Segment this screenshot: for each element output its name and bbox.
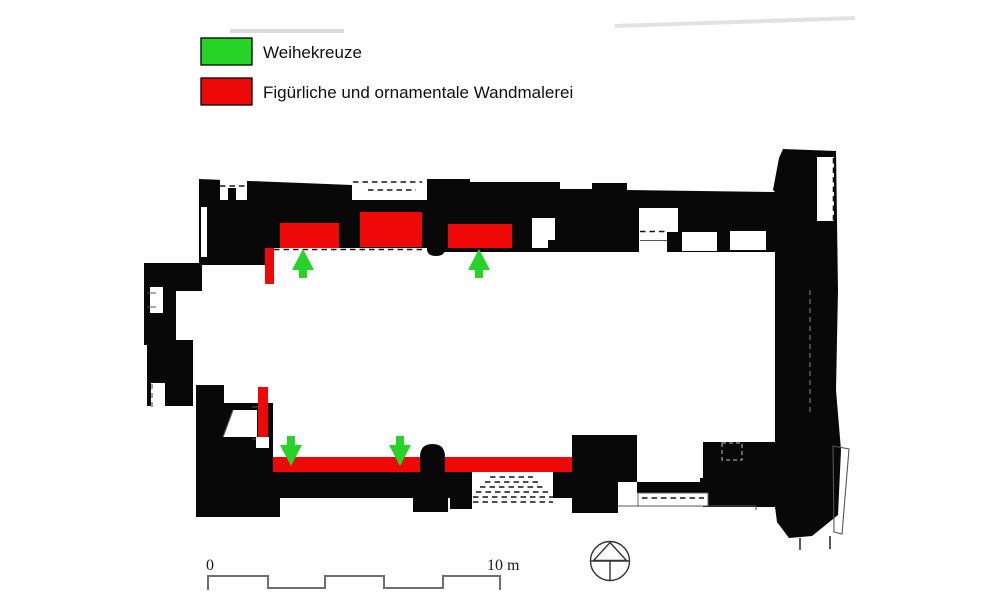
- south-arch-respond: [420, 444, 445, 506]
- plan-svg: Weihekreuze Figürliche und ornamentale W…: [0, 0, 1000, 594]
- north-arch-respond: [427, 244, 445, 256]
- south-wall-segment: [553, 472, 572, 498]
- painting-zone-north-3: [448, 224, 512, 248]
- weihekreuz-arrows: [280, 249, 490, 466]
- exterior-stairs: [473, 477, 553, 502]
- chancel-south-wall: [637, 482, 705, 493]
- weihekreuz-arrow-up-2: [468, 249, 490, 278]
- window-niche: [730, 231, 766, 250]
- painting-zone-north-2: [360, 212, 422, 247]
- window-niche: [201, 207, 207, 257]
- painting-zone-west-south-pier: [258, 387, 268, 437]
- scale-bar: 0 10 m: [206, 557, 520, 590]
- north-wall: [199, 179, 775, 265]
- scan-smudge: [615, 18, 855, 26]
- north-compass: [591, 542, 630, 581]
- tower-window-niche: [817, 157, 834, 221]
- weihekreuz-arrow-up-1: [292, 249, 314, 278]
- south-porch-steps: [638, 493, 708, 506]
- south-buttress: [242, 497, 277, 513]
- legend-swatch-weihekreuze: [201, 38, 252, 65]
- south-wall-segment: [450, 494, 472, 509]
- painting-zone-north-1: [280, 223, 339, 248]
- painting-zone-west-north-pier: [265, 248, 274, 284]
- legend-label-weihekreuze: Weihekreuze: [263, 43, 362, 62]
- floor-plan-figure: Weihekreuze Figürliche und ornamentale W…: [0, 0, 1000, 594]
- window-niche: [151, 383, 165, 410]
- window-niche: [682, 232, 717, 251]
- scan-smudge: [230, 29, 344, 33]
- west-wall-segment: [173, 263, 202, 291]
- scale-label-end: 10 m: [487, 557, 520, 574]
- scale-bar-line: [208, 576, 500, 590]
- south-wall-segment: [445, 472, 472, 479]
- scan-artifacts: [230, 18, 855, 33]
- church-walls: [144, 149, 841, 538]
- legend-label-wandmalerei: Figürliche und ornamentale Wandmalerei: [263, 83, 573, 102]
- chancel-north-door: [639, 232, 667, 252]
- legend-swatch-wandmalerei: [201, 78, 252, 105]
- window-mullion: [228, 188, 236, 201]
- legend: Weihekreuze Figürliche und ornamentale W…: [201, 38, 573, 105]
- scale-label-start: 0: [206, 557, 214, 574]
- chancel-north-door: [639, 208, 678, 232]
- arch-springing-gap: [256, 437, 269, 448]
- niche-step: [548, 240, 556, 252]
- window-niche: [150, 287, 163, 313]
- chancel-south-wall: [572, 482, 618, 513]
- painting-zone-south-2: [445, 457, 572, 472]
- outline-ticks: [800, 536, 830, 550]
- chancel-south-wall: [572, 435, 637, 482]
